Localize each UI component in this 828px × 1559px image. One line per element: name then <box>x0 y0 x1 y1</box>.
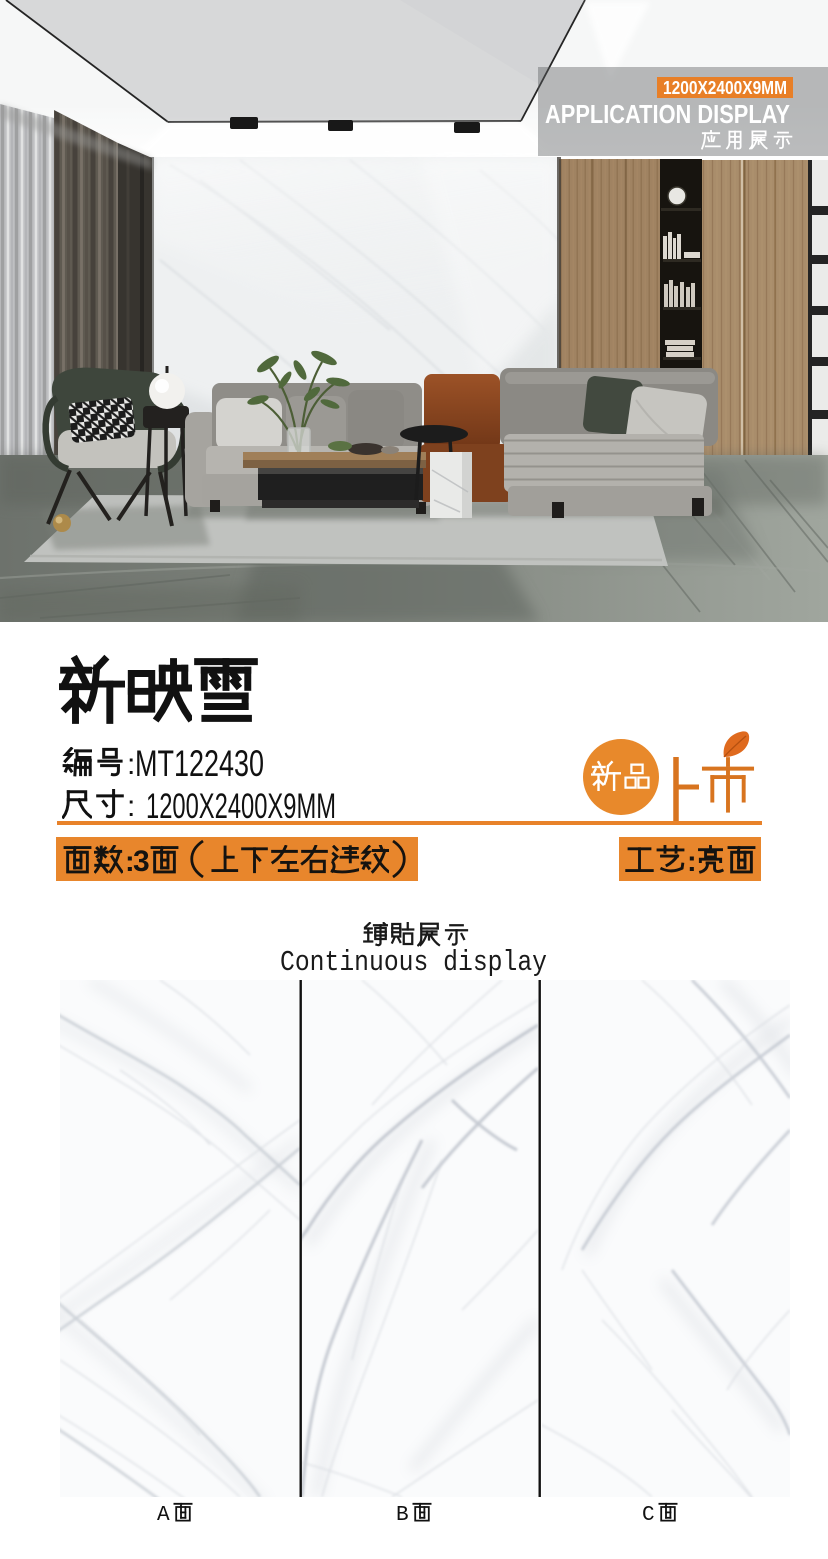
svg-text:MT122430: MT122430 <box>135 743 264 784</box>
svg-text:Continuous display: Continuous display <box>280 946 547 979</box>
svg-text:APPLICATION DISPLAY: APPLICATION DISPLAY <box>545 99 790 129</box>
svg-text:A: A <box>157 1504 170 1527</box>
svg-text::: : <box>127 790 135 823</box>
svg-text:3: 3 <box>133 845 150 878</box>
svg-text:C: C <box>642 1504 655 1527</box>
svg-text:1200X2400X9MM: 1200X2400X9MM <box>146 787 336 826</box>
svg-text:1200X2400X9MM: 1200X2400X9MM <box>663 78 787 98</box>
svg-text:B: B <box>396 1504 409 1527</box>
svg-text::: : <box>687 846 697 878</box>
